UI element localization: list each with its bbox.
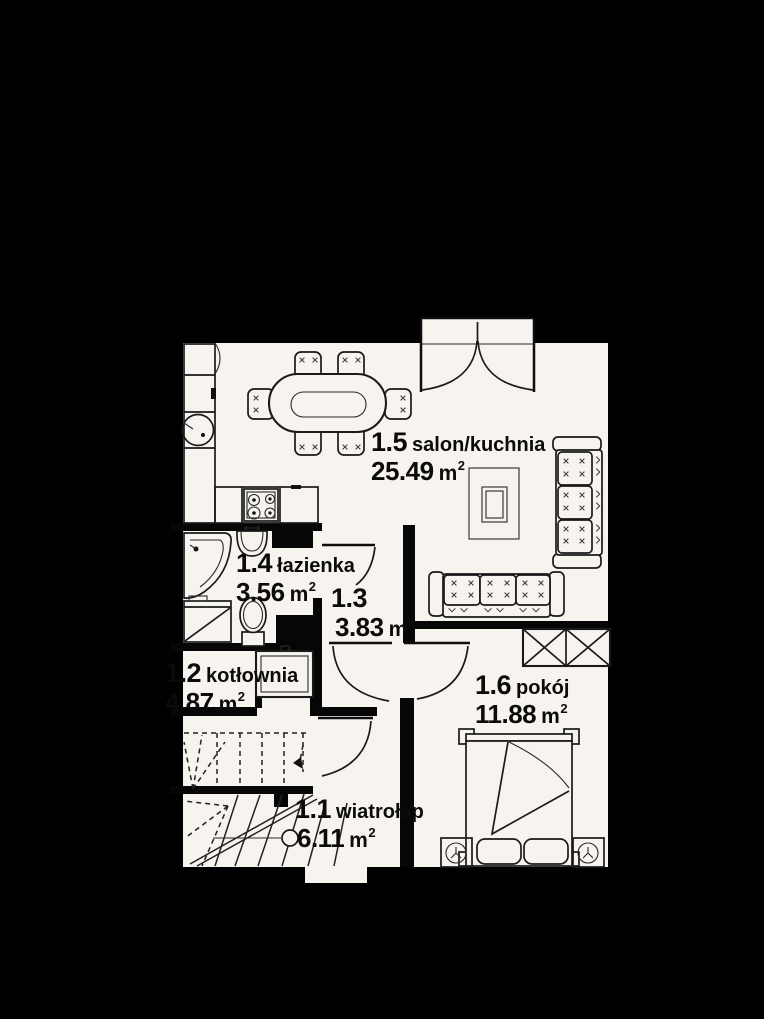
room-label-kotlownia: 1.2kotłownia 4.87m2 (165, 659, 298, 717)
double-bed-icon (459, 729, 579, 866)
sofa-horizontal-icon (429, 572, 564, 617)
room-label-hall: 1.3 3.83m2 (331, 584, 414, 642)
duct-shaft-upper (272, 523, 313, 548)
duct-shaft-lower (276, 615, 313, 643)
sofa-vertical-icon (553, 437, 602, 568)
entrance-step (305, 867, 367, 883)
pillow (477, 839, 521, 864)
dining-table-icon (269, 374, 386, 432)
floor-plan-drawing (0, 0, 764, 1019)
room-label-pokoj: 1.6pokój 11.88m2 (475, 671, 569, 729)
wardrobe-icon (523, 629, 610, 666)
room-label-wiatrolap: 1.1wiatrołap 6.11m2 (295, 795, 424, 853)
room-label-salon-kuchnia: 1.5salon/kuchnia 25.49m2 (371, 428, 545, 486)
pillow (524, 839, 568, 864)
floor-plan-page: 1.5salon/kuchnia 25.49m2 1.4łazienka 3.5… (0, 0, 764, 1019)
